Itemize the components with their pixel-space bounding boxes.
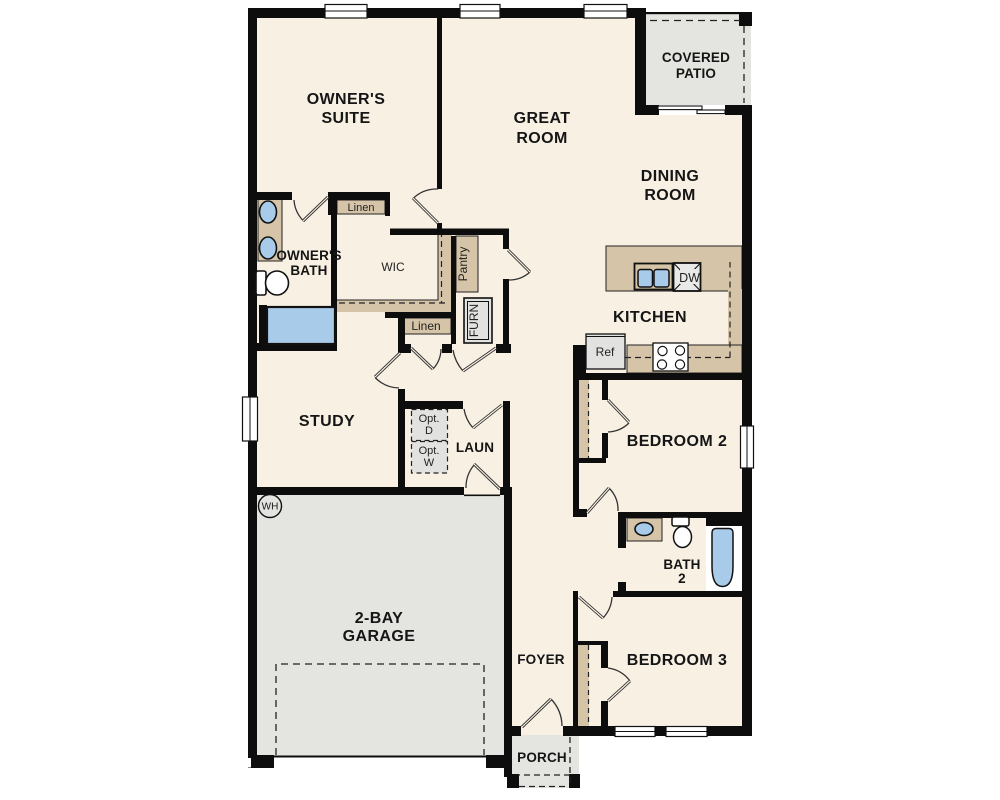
- svg-text:WH: WH: [262, 502, 279, 513]
- svg-text:FURN: FURN: [467, 304, 481, 337]
- svg-text:Opt.: Opt.: [419, 413, 440, 425]
- svg-text:Ref: Ref: [596, 345, 615, 359]
- svg-text:ROOM: ROOM: [516, 130, 567, 147]
- svg-text:FOYER: FOYER: [517, 652, 565, 667]
- svg-text:PORCH: PORCH: [517, 750, 567, 765]
- svg-text:PATIO: PATIO: [676, 66, 716, 81]
- svg-text:LAUN: LAUN: [456, 440, 494, 455]
- svg-text:COVERED: COVERED: [662, 50, 730, 65]
- svg-text:DINING: DINING: [641, 168, 699, 185]
- svg-text:WIC: WIC: [381, 260, 405, 274]
- svg-text:Pantry: Pantry: [456, 247, 470, 282]
- svg-text:Linen: Linen: [348, 202, 375, 214]
- svg-text:BEDROOM 2: BEDROOM 2: [627, 433, 728, 450]
- svg-text:Linen: Linen: [411, 319, 440, 333]
- svg-text:D: D: [425, 425, 433, 437]
- svg-text:DW: DW: [679, 271, 700, 285]
- svg-text:W: W: [424, 457, 435, 469]
- svg-text:2-BAY: 2-BAY: [355, 610, 404, 627]
- svg-text:KITCHEN: KITCHEN: [613, 309, 687, 326]
- svg-text:BEDROOM 3: BEDROOM 3: [627, 652, 728, 669]
- svg-text:STUDY: STUDY: [299, 413, 355, 430]
- svg-text:2: 2: [678, 571, 686, 586]
- svg-text:OWNER'S: OWNER'S: [276, 248, 341, 263]
- svg-text:ROOM: ROOM: [644, 187, 695, 204]
- svg-text:OWNER'S: OWNER'S: [307, 91, 386, 108]
- svg-text:GARAGE: GARAGE: [343, 628, 416, 645]
- svg-text:BATH: BATH: [663, 557, 700, 572]
- svg-text:GREAT: GREAT: [514, 110, 571, 127]
- svg-text:SUITE: SUITE: [321, 110, 370, 127]
- svg-text:BATH: BATH: [290, 263, 327, 278]
- svg-text:Opt.: Opt.: [419, 445, 440, 457]
